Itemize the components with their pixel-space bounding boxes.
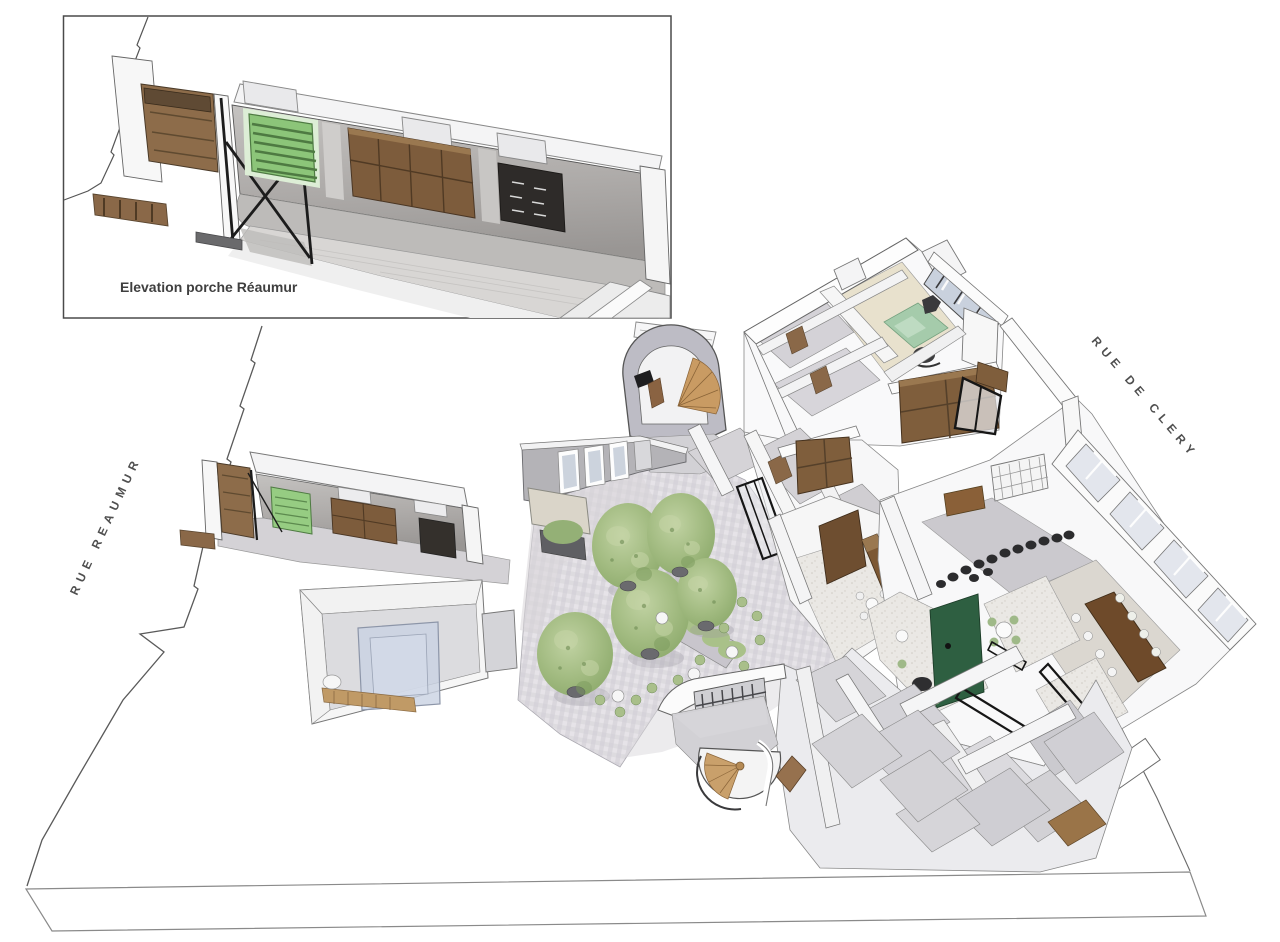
svg-text:Elevation porche Réaumur: Elevation porche Réaumur	[120, 279, 298, 295]
